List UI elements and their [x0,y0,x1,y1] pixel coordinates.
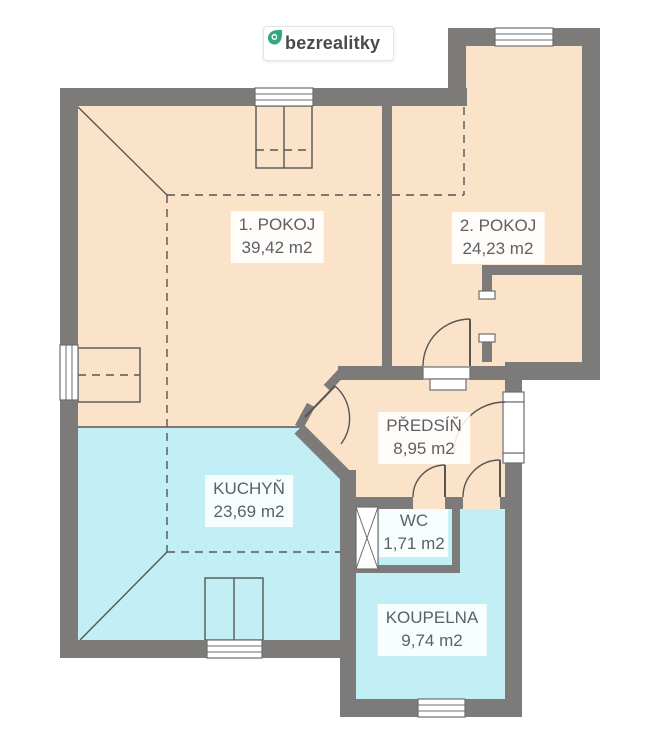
room1-area: 39,42 m2 [239,237,316,260]
room-label-room1: 1. POKOJ 39,42 m2 [231,211,324,263]
room-label-hallway: PŘEDSÍŇ 8,95 m2 [378,412,470,464]
window-room1-top [255,88,313,106]
window-room1-left [60,345,78,400]
room2-name: 2. POKOJ [460,215,537,238]
closet-opening [479,291,495,342]
hallway-name: PŘEDSÍŇ [386,415,462,438]
wc-area: 1,71 m2 [383,533,444,556]
room-label-kitchen: KUCHYŇ 23,69 m2 [205,475,293,527]
floorplan-drawing [0,0,645,740]
room2-upper-floor [466,46,582,108]
window-kitchen-bottom [207,640,262,658]
room-label-wc: WC 1,71 m2 [379,509,448,557]
bathroom-name: KOUPELNA [386,607,479,630]
shaft-box [356,507,378,569]
window-room2-top [495,28,553,46]
bezrealitky-logo: bezrealitky [263,26,394,61]
room2-area: 24,23 m2 [460,238,537,261]
kitchen-name: KUCHYŇ [213,478,285,501]
floorplan-canvas: bezrealitky 1. POKOJ 39,42 m2 2. POKOJ 2… [0,0,645,740]
kitchen-area: 23,69 m2 [213,501,285,524]
room-label-bathroom: KOUPELNA 9,74 m2 [378,604,487,656]
window-bathroom-bottom [418,699,465,717]
logo-text: bezrealitky [285,33,380,54]
kitchen-floor [78,427,340,640]
hallway-area: 8,95 m2 [386,438,462,461]
room-label-room2: 2. POKOJ 24,23 m2 [452,212,545,264]
bathroom-area: 9,74 m2 [386,630,479,653]
wc-name: WC [383,510,444,533]
room1-name: 1. POKOJ [239,214,316,237]
